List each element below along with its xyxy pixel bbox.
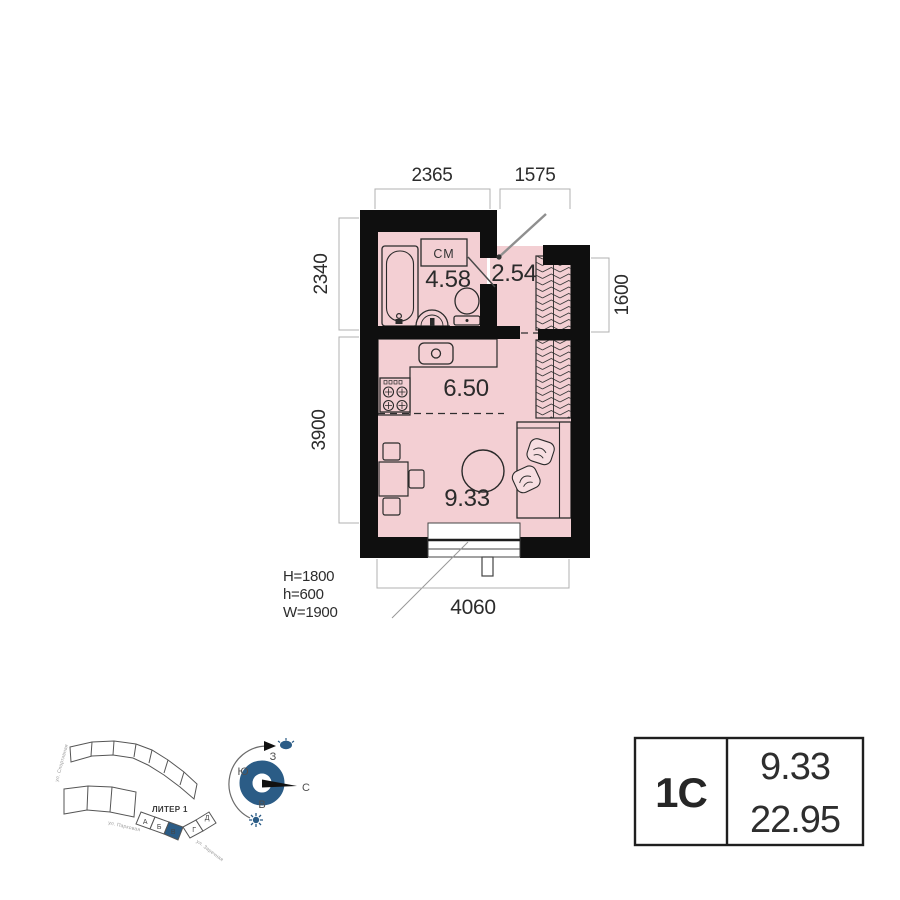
dim-right-wardrobe: 1600 (612, 274, 633, 315)
bed (510, 422, 571, 518)
area-label-hallway: 2.54 (491, 260, 537, 287)
street-label-left: ул. Спортивная (54, 744, 70, 783)
wall-bathroom-right-upper (480, 210, 497, 258)
chair (383, 443, 400, 460)
dim-top-entry: 1575 (514, 165, 555, 186)
compass-west-label: З (270, 751, 277, 763)
compass-north-label: С (302, 782, 310, 794)
site-building-label: ЛИТЕР 1 (152, 805, 188, 814)
stove (380, 378, 410, 412)
wall-bathroom-right-lower (480, 284, 497, 332)
floorplan-page: СМ (0, 0, 900, 900)
sun-path-arrowhead (264, 741, 276, 751)
window-spec-H: H=1800 (283, 568, 334, 585)
section-label-a: А (143, 819, 148, 826)
dim-bottom: 4060 (450, 596, 496, 619)
section-label-d: Д (205, 815, 210, 822)
compass-south-label: Ю (237, 766, 248, 778)
info-table: 1С 9.33 22.95 (635, 738, 863, 845)
toilet (454, 288, 480, 325)
wardrobe-lower (536, 340, 571, 418)
window-drain (482, 557, 493, 576)
area-label-kitchen: 6.50 (443, 375, 489, 402)
dim-left-lower: 3900 (309, 409, 330, 450)
wall-bottom-right (520, 537, 590, 558)
dim-left-upper: 2340 (311, 253, 332, 294)
floorplan-drawing: СМ (0, 0, 900, 900)
window-spec-W: W=1900 (283, 604, 338, 621)
site-plan: ЛИТЕР 1 А Б В Г Д ул. Спортивная ул. Пар… (54, 741, 224, 863)
site-building-west (64, 786, 136, 817)
street-label-right: ул. Заречная (195, 839, 225, 863)
window-spec-h: h=600 (283, 586, 324, 603)
living-area-value: 9.33 (760, 746, 830, 788)
chair (383, 498, 400, 515)
wall-bathroom-bottom (360, 326, 520, 339)
area-label-bathroom: 4.58 (425, 266, 471, 293)
compass: З Ю В С (229, 738, 310, 827)
section-label-g: Г (192, 827, 196, 834)
dim-top-bathroom: 2365 (411, 165, 452, 186)
sunrise-icon (249, 813, 263, 827)
washing-machine: СМ (421, 239, 467, 266)
kitchen-sink (419, 343, 453, 364)
sunset-icon (278, 738, 294, 749)
washing-machine-label: СМ (433, 247, 454, 261)
dining-table (379, 462, 408, 496)
chair (409, 470, 424, 488)
unit-type: 1С (655, 769, 707, 816)
floor-plan: СМ (283, 165, 633, 621)
compass-east-label: В (258, 799, 265, 811)
bathtub (382, 246, 418, 326)
section-label-b: Б (157, 824, 162, 831)
wall-wardrobe-divider (538, 329, 571, 340)
wall-left (360, 210, 378, 558)
area-label-living: 9.33 (444, 485, 490, 512)
street-label-bottom: ул. Парковая (108, 820, 141, 833)
total-area-value: 22.95 (750, 799, 840, 841)
wardrobe-upper (536, 256, 571, 330)
wall-right (571, 245, 590, 558)
wall-bottom-left (360, 537, 428, 558)
wall-top (360, 210, 497, 232)
section-label-v: В (171, 829, 176, 836)
